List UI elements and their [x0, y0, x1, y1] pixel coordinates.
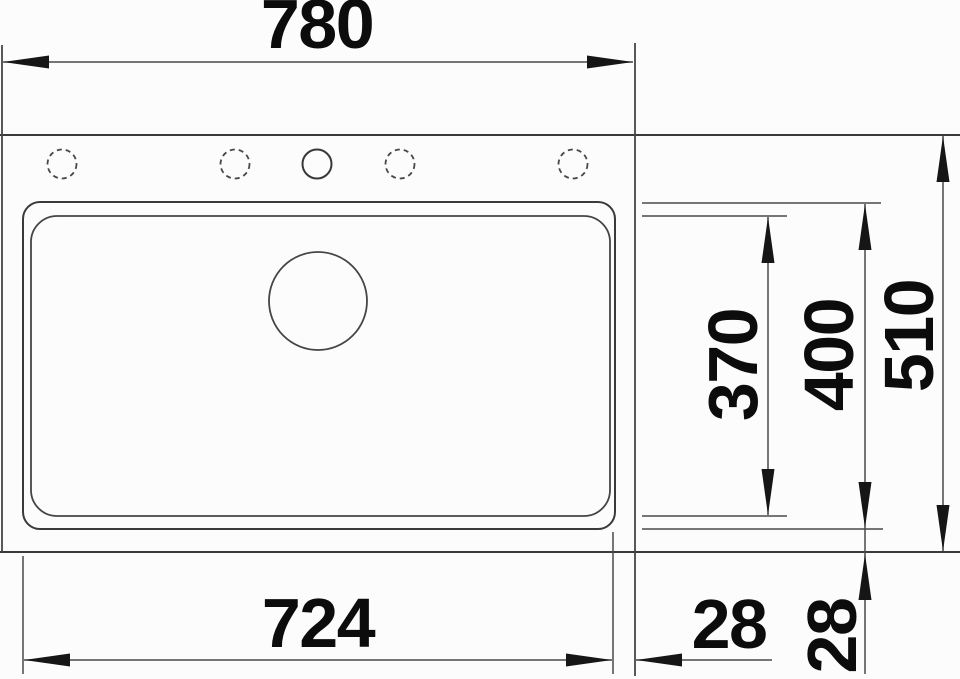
- tap-hole-optional-1: [48, 150, 77, 179]
- dim-bowl-inner-depth-label: 370: [694, 309, 772, 421]
- arrowhead-top-bowl-outer-depth: [859, 204, 872, 250]
- drain-hole: [269, 252, 367, 350]
- arrowhead-right-offset: [636, 654, 682, 667]
- bowl-outer-outline: [23, 202, 615, 529]
- tap-hole-optional-4: [559, 150, 588, 179]
- arrowhead-left-overall-width: [3, 56, 49, 69]
- dim-bowl-outer-depth-label: 400: [790, 299, 868, 411]
- arrowhead-top-bowl-inner-depth: [762, 217, 775, 263]
- tap-hole-optional-3: [386, 150, 415, 179]
- arrowhead-right-overall-width: [587, 56, 633, 69]
- drawing-canvas: 780 370 400 510 724 28 28: [0, 0, 960, 679]
- arrowhead-bottom-bowl-outer-depth: [859, 482, 872, 528]
- dim-bottom-offset-label: 28: [793, 599, 871, 674]
- arrowhead-top-overall-depth: [937, 136, 950, 182]
- bowl-inner-outline: [31, 216, 610, 516]
- tap-hole-main: [303, 150, 332, 179]
- tap-hole-optional-2: [221, 150, 250, 179]
- dim-overall-depth-label: 510: [870, 280, 948, 392]
- dim-overall-width-label: 780: [261, 0, 373, 63]
- arrowhead-bottom-overall-depth: [937, 505, 950, 551]
- arrowhead-bottom-bowl-inner-depth: [762, 469, 775, 515]
- arrowhead-left-bowl-width: [24, 654, 70, 667]
- arrowhead-right-bowl-width: [566, 654, 612, 667]
- dim-right-offset-label: 28: [692, 585, 767, 663]
- arrowhead-bottom-offset: [859, 554, 872, 600]
- dim-bowl-width-label: 724: [262, 584, 376, 662]
- sink-dimension-drawing: 780 370 400 510 724 28 28: [0, 0, 960, 679]
